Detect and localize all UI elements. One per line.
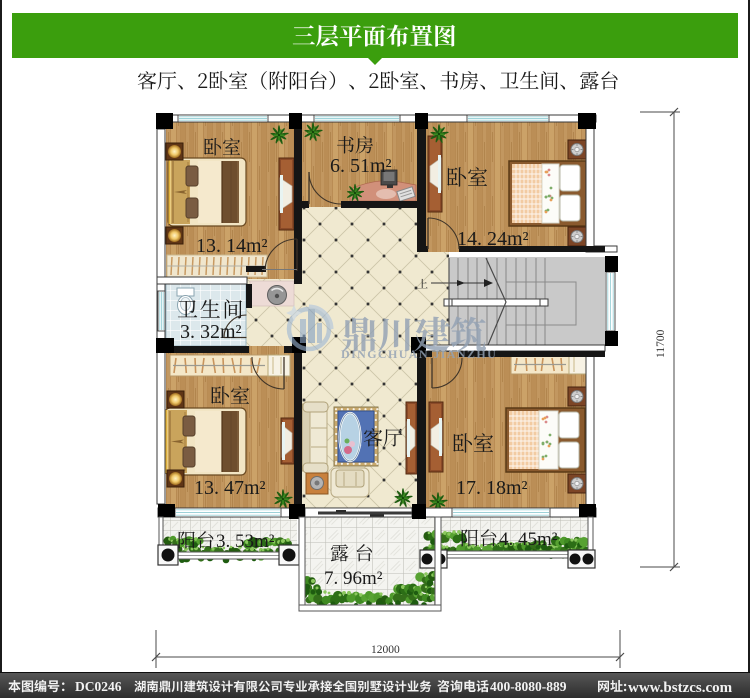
svg-text:DC0246: DC0246	[75, 679, 122, 694]
svg-text:DINGCHUAN JIANZHU: DINGCHUAN JIANZHU	[341, 347, 497, 361]
svg-text:11700: 11700	[655, 329, 667, 358]
svg-text:4. 45m²: 4. 45m²	[499, 529, 558, 550]
svg-text:www.bstzcs.com: www.bstzcs.com	[628, 680, 733, 696]
svg-text:7. 96m²: 7. 96m²	[324, 568, 383, 589]
svg-text:13. 14m²: 13. 14m²	[196, 235, 268, 257]
svg-text:12000: 12000	[371, 644, 400, 656]
svg-text:17. 18m²: 17. 18m²	[456, 477, 528, 499]
svg-text:3. 53m²: 3. 53m²	[216, 531, 275, 552]
svg-text:14. 24m²: 14. 24m²	[457, 228, 529, 250]
svg-text:400-8080-889: 400-8080-889	[490, 679, 567, 694]
svg-text:3. 32m²: 3. 32m²	[180, 321, 242, 343]
svg-text:13. 47m²: 13. 47m²	[194, 477, 266, 499]
svg-text:6. 51m²: 6. 51m²	[330, 155, 392, 177]
